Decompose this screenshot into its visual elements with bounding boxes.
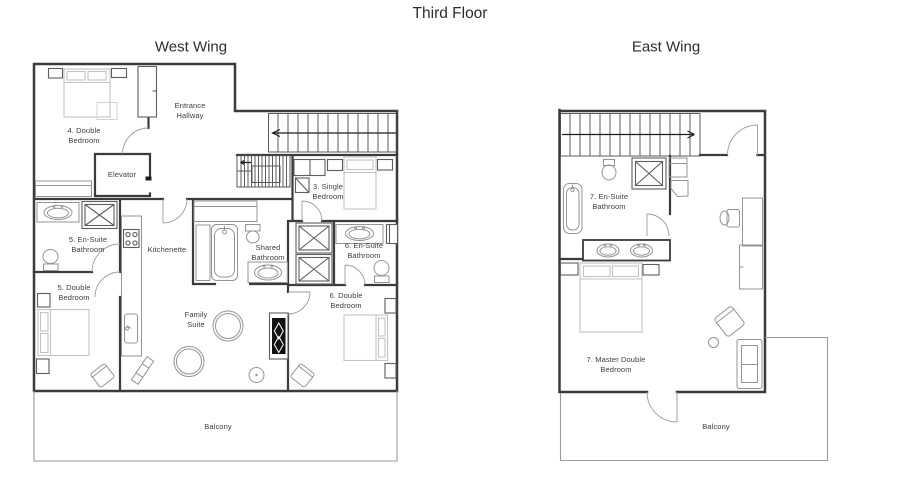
- armchair-7: [714, 306, 745, 338]
- sofa-7: [737, 340, 762, 389]
- double-vanity-7: [583, 240, 670, 261]
- fireplace: [270, 313, 289, 359]
- shower-lower: [296, 255, 332, 285]
- closet-7: [669, 158, 688, 197]
- hallway-wardrobe: [138, 67, 157, 118]
- floor-plan: Third Floor West Wing East Wing 4. Doubl…: [0, 0, 900, 489]
- east-wing: [560, 110, 828, 461]
- round-table: [213, 311, 243, 341]
- label-master-bedroom: 7. Master Double Bedroom: [587, 355, 646, 375]
- floor-plan-drawing: [0, 0, 900, 489]
- label-balcony-east: Balcony: [702, 422, 729, 432]
- shower-upper: [296, 223, 332, 253]
- label-ensuite-5: 5. En-Suite Bathroom: [69, 235, 107, 255]
- side-counter: [196, 225, 210, 281]
- desk-7: [720, 198, 763, 246]
- label-elevator: Elevator: [108, 170, 136, 180]
- label-entrance-hallway: Entrance Hallway: [175, 101, 206, 121]
- kitchenette-counter: [122, 216, 142, 356]
- bathtub-shared: [212, 225, 238, 281]
- label-bedroom-4: 4. Double Bedroom: [67, 126, 100, 146]
- nightstand: [378, 160, 393, 171]
- bathroom-counter: [194, 201, 257, 222]
- west-wing: [34, 64, 398, 461]
- nightstand: [37, 359, 50, 374]
- label-kitchenette: Kitchenette: [148, 245, 187, 255]
- main-staircase-west: [269, 114, 397, 153]
- west-wing-title: West Wing: [155, 39, 227, 56]
- switchback-staircase-west: [237, 156, 290, 188]
- label-ensuite-6: 6. En-Suite Bathroom: [345, 241, 383, 261]
- sink-shared: [248, 262, 288, 283]
- label-ensuite-7: 7. En-Suite Bathroom: [590, 192, 628, 212]
- nightstand: [385, 299, 396, 314]
- stairs-direction-arrow-left: [273, 130, 397, 137]
- toilet-6: [374, 261, 389, 283]
- double-bed-5: [38, 310, 89, 356]
- double-bed-6: [344, 315, 388, 361]
- nightstand: [49, 69, 63, 79]
- nightstand: [112, 69, 127, 78]
- label-bedroom-5: 5. Double Bedroom: [57, 283, 90, 303]
- stairs-direction-arrow-small: [241, 161, 251, 165]
- armchair-6: [290, 363, 315, 387]
- nightstand: [561, 263, 579, 275]
- sink-5: [37, 203, 79, 223]
- closet-6: [387, 225, 398, 244]
- label-family-suite: Family Suite: [185, 310, 208, 330]
- round-table: [174, 347, 204, 377]
- east-wing-title: East Wing: [632, 39, 700, 56]
- label-bedroom-6: 6. Double Bedroom: [329, 291, 362, 311]
- label-shared-bathroom: Shared Bathroom: [251, 243, 284, 263]
- nightstand: [328, 160, 343, 171]
- shower-5: [82, 202, 117, 229]
- label-balcony-west: Balcony: [204, 422, 231, 432]
- wardrobe-7: [740, 245, 763, 289]
- bathtub-7: [564, 184, 583, 234]
- desk-chair: [720, 211, 729, 225]
- shower-7: [632, 158, 666, 189]
- stool: [709, 338, 719, 348]
- label-bedroom-3: 3. Single Bedroom: [312, 182, 343, 202]
- toilet-5: [43, 250, 58, 271]
- single-bed-3: [344, 157, 376, 209]
- nightstand: [38, 294, 51, 308]
- double-bed-4: [64, 69, 110, 117]
- nightstand: [643, 265, 659, 276]
- dresser: [36, 181, 92, 197]
- armchair-5: [90, 363, 115, 387]
- main-staircase-east: [561, 114, 701, 157]
- elevator-door-marker: [146, 177, 152, 181]
- stairs-direction-arrow-right: [562, 131, 695, 138]
- toilet-7: [602, 160, 616, 181]
- page-title: Third Floor: [413, 5, 488, 23]
- nightstand: [385, 364, 396, 379]
- master-double-bed: [580, 263, 642, 332]
- toilet-shared: [246, 225, 261, 244]
- shared-bathroom-fixtures: [194, 201, 288, 283]
- ironing-board: [131, 357, 153, 385]
